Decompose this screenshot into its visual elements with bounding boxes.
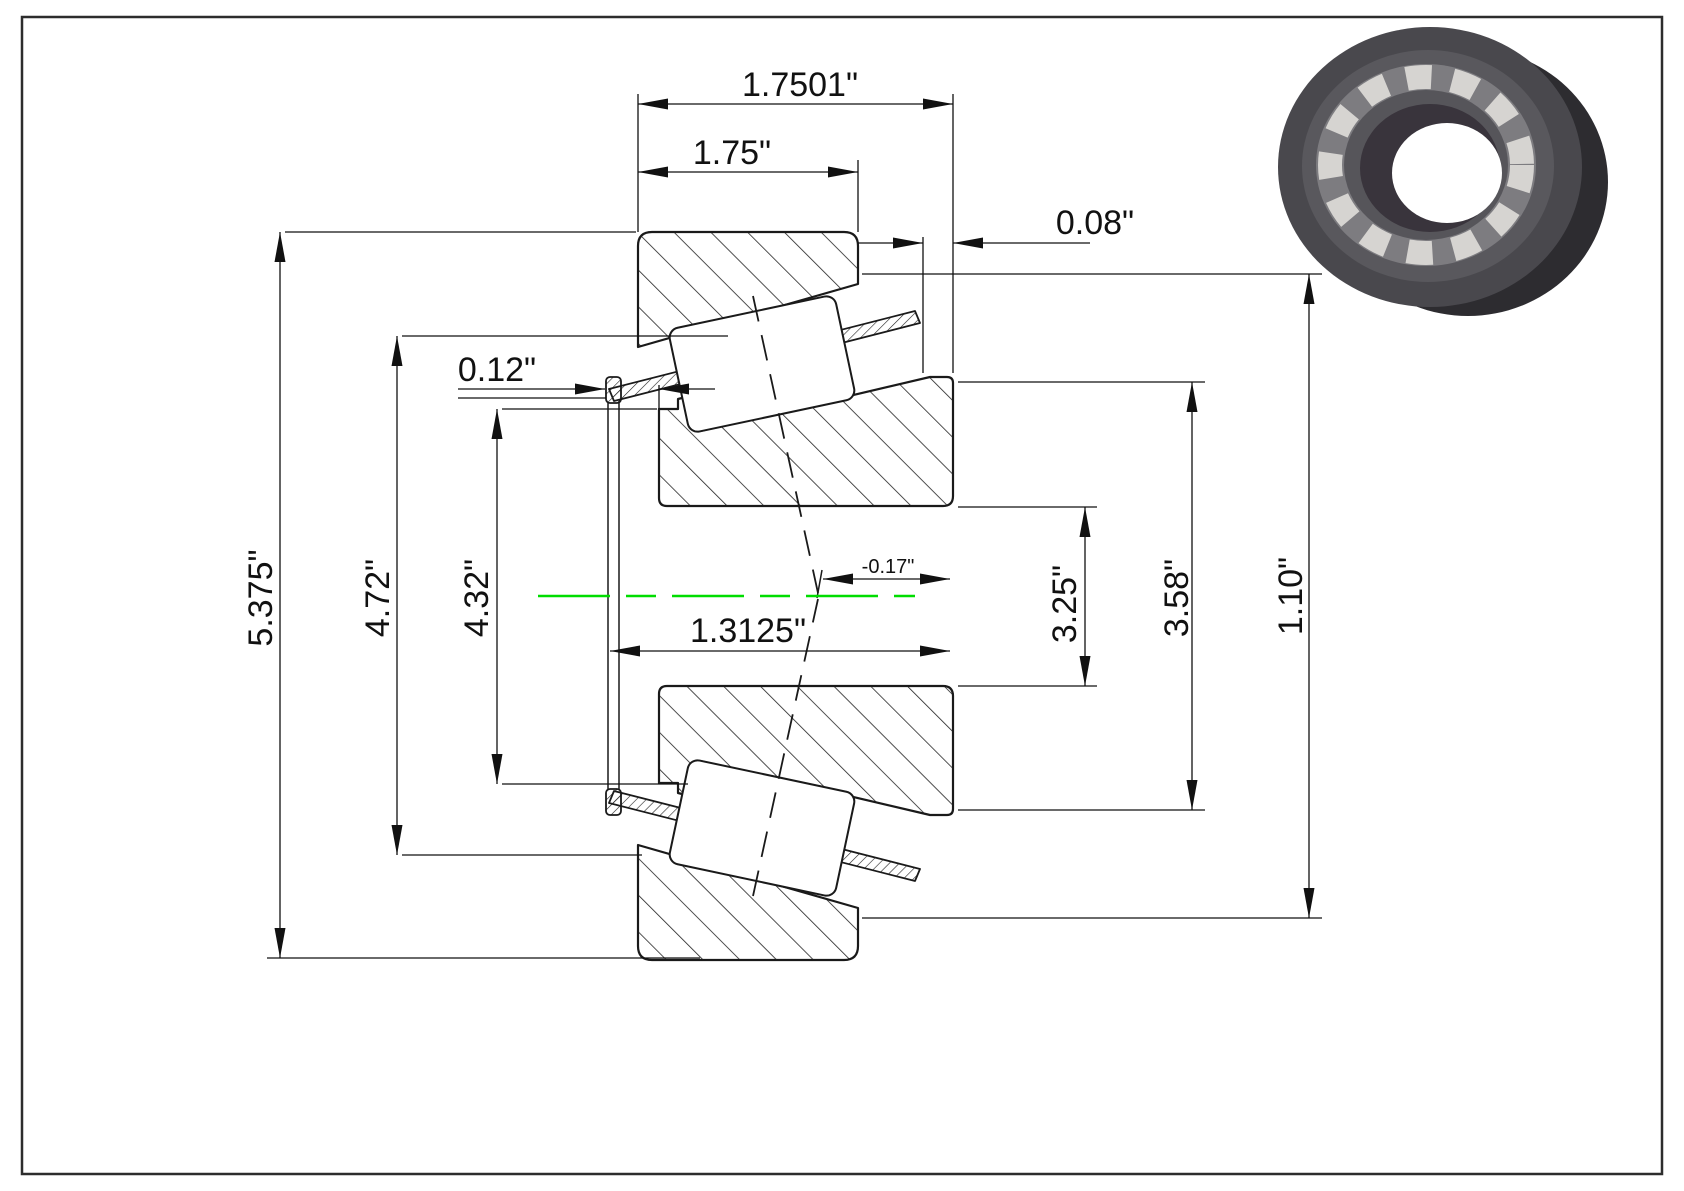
dim-cup-inner-width: 1.10" bbox=[1272, 557, 1310, 635]
bearing-dimension-drawing: 1.7501" 1.75" 0.08" 0.12" 1.3125" -0.17"… bbox=[0, 0, 1684, 1191]
dim-cup-width: 1.75" bbox=[693, 134, 771, 172]
dimension-arrowhead bbox=[893, 238, 923, 249]
dimension-arrowhead bbox=[920, 574, 950, 585]
dim-outer-diameter: 5.375" bbox=[242, 549, 280, 646]
dimension-arrowhead bbox=[392, 336, 403, 366]
apex-tick bbox=[817, 570, 822, 598]
dimension-arrowhead bbox=[275, 928, 286, 958]
dim-apex-offset: -0.17" bbox=[862, 556, 915, 578]
dim-cone-front-diameter: 3.58" bbox=[1158, 559, 1196, 637]
cage-top-lip bbox=[606, 377, 621, 403]
dim-cage-protrusion: 0.12" bbox=[458, 351, 536, 389]
dimension-arrowhead bbox=[1080, 656, 1091, 686]
dimension-arrowhead bbox=[1304, 274, 1315, 304]
dim-cone-backface-diameter: 4.32" bbox=[458, 559, 496, 637]
bearing-3d-bore-hole bbox=[1392, 123, 1502, 223]
drawing-page: 1.7501" 1.75" 0.08" 0.12" 1.3125" -0.17"… bbox=[0, 0, 1684, 1191]
dimension-arrowhead bbox=[638, 167, 668, 178]
dimension-arrowhead bbox=[1080, 507, 1091, 537]
dimension-arrowhead bbox=[492, 754, 503, 784]
dim-bore-length: 1.3125" bbox=[690, 612, 806, 650]
dimension-arrowhead bbox=[1304, 888, 1315, 918]
dimension-arrowhead bbox=[638, 99, 668, 110]
dimension-arrowhead bbox=[920, 646, 950, 657]
dimension-arrowhead bbox=[275, 232, 286, 262]
dimension-arrowhead bbox=[1187, 780, 1198, 810]
dimension-arrowhead bbox=[823, 574, 853, 585]
dimension-arrowhead bbox=[575, 384, 605, 395]
dim-overall-width: 1.7501" bbox=[742, 66, 858, 104]
cage-bottom-lip bbox=[606, 789, 621, 815]
dimension-arrowhead bbox=[953, 238, 983, 249]
dimension-arrowhead bbox=[392, 825, 403, 855]
dimension-arrowhead bbox=[1187, 382, 1198, 412]
dimension-arrowhead bbox=[610, 646, 640, 657]
dim-bore-diameter: 3.25" bbox=[1046, 565, 1084, 643]
dimension-arrowhead bbox=[492, 409, 503, 439]
dim-cage-diameter: 4.72" bbox=[359, 559, 397, 637]
dimension-arrowhead bbox=[828, 167, 858, 178]
dimension-arrowhead bbox=[923, 99, 953, 110]
bearing-photo-3d bbox=[1278, 27, 1608, 316]
dim-cup-back-offset: 0.08" bbox=[1056, 204, 1134, 242]
